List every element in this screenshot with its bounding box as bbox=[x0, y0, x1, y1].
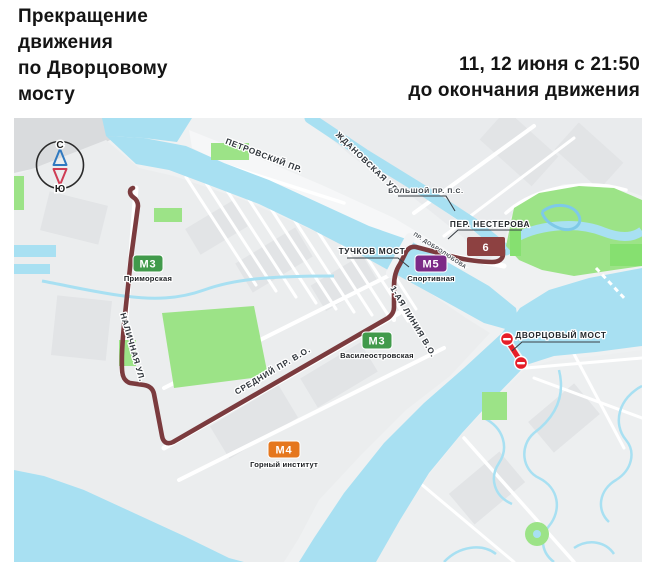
route-number: 6 bbox=[483, 242, 490, 254]
street-label-bolshoy-ps: БОЛЬШОЙ ПР. П.С. bbox=[388, 186, 464, 195]
compass-north-label: С bbox=[56, 140, 63, 151]
title-line: движения bbox=[18, 30, 168, 56]
title-line: мосту bbox=[18, 82, 168, 108]
street-label-nesterova: ПЕР. НЕСТЕРОВА bbox=[450, 219, 530, 229]
metro-badge-m3: М3 bbox=[140, 259, 157, 271]
metro-station-name: Приморская bbox=[124, 274, 172, 283]
schedule-text: 11, 12 июня с 21:50 до окончания движени… bbox=[408, 52, 640, 104]
metro-badge-m5: М5 bbox=[423, 259, 440, 271]
schedule-line: до окончания движения bbox=[408, 78, 640, 104]
route-number-badge: 6 bbox=[467, 237, 505, 256]
metro-badge-m4: М4 bbox=[276, 445, 293, 457]
metro-station-name: Василеостровская bbox=[340, 351, 414, 360]
page-title: Прекращение движения по Дворцовому мосту bbox=[18, 4, 168, 108]
title-line: по Дворцовому bbox=[18, 56, 168, 82]
dvortsovy-bridge-label: ДВОРЦОВЫЙ МОСТ bbox=[515, 329, 606, 340]
title-line: Прекращение bbox=[18, 4, 168, 30]
compass-south-label: Ю bbox=[55, 184, 65, 195]
schedule-line: 11, 12 июня с 21:50 bbox=[408, 52, 640, 78]
poster: Прекращение движения по Дворцовому мосту… bbox=[0, 0, 656, 573]
metro-badge-m3: М3 bbox=[369, 336, 386, 348]
no-entry-icon bbox=[501, 333, 514, 346]
map-svg: 6 С Ю ПЕТРОВСКИЙ ПР. ЖДАНОВСКАЯ УЛ. БОЛЬ… bbox=[14, 118, 642, 562]
map-canvas: 6 С Ю ПЕТРОВСКИЙ ПР. ЖДАНОВСКАЯ УЛ. БОЛЬ… bbox=[14, 118, 642, 562]
no-entry-icon bbox=[515, 357, 528, 370]
metro-station-name: Спортивная bbox=[407, 274, 455, 283]
tuchkov-bridge-label: ТУЧКОВ МОСТ bbox=[339, 246, 406, 256]
metro-station-name: Горный институт bbox=[250, 460, 318, 469]
